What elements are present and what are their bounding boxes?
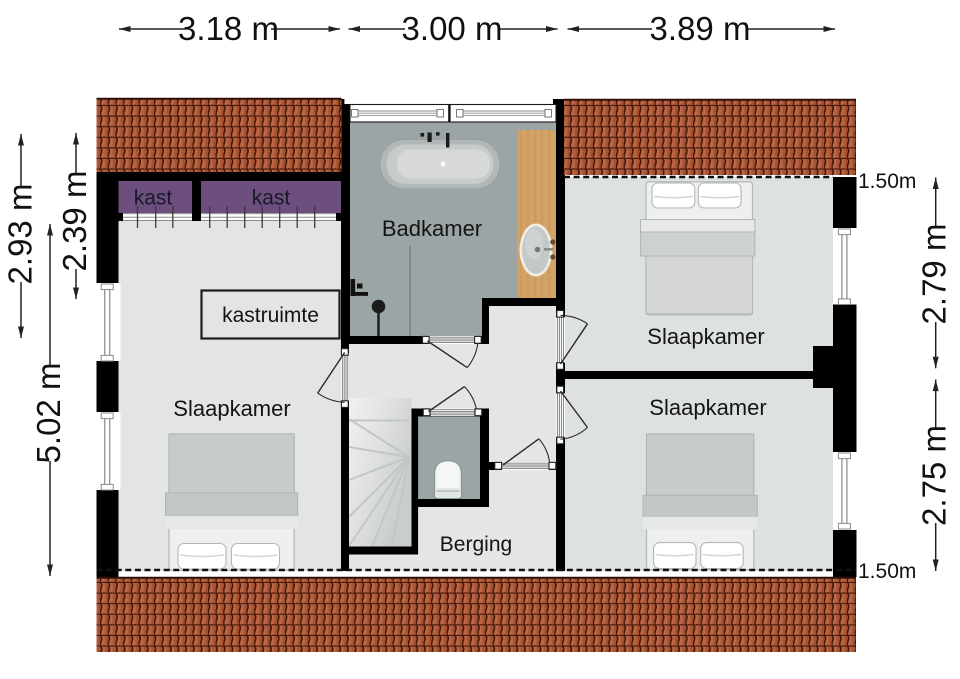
svg-text:1.50m: 1.50m: [858, 560, 916, 583]
svg-text:kastruimte: kastruimte: [222, 304, 319, 327]
svg-text:1.50m: 1.50m: [858, 170, 916, 193]
svg-text:3.00 m: 3.00 m: [402, 10, 503, 47]
svg-text:3.89 m: 3.89 m: [650, 10, 751, 47]
svg-text:2.93 m: 2.93 m: [2, 184, 39, 285]
svg-text:Berging: Berging: [440, 533, 512, 556]
svg-text:5.02 m: 5.02 m: [30, 363, 67, 464]
svg-text:2.39 m: 2.39 m: [56, 171, 93, 272]
svg-text:Slaapkamer: Slaapkamer: [647, 324, 764, 349]
svg-text:2.75 m: 2.75 m: [916, 425, 953, 526]
svg-text:Slaapkamer: Slaapkamer: [649, 395, 766, 420]
svg-text:Slaapkamer: Slaapkamer: [173, 396, 290, 421]
svg-text:Badkamer: Badkamer: [382, 216, 482, 241]
svg-text:kast: kast: [134, 187, 173, 210]
svg-text:3.18 m: 3.18 m: [178, 10, 279, 47]
svg-text:2.79 m: 2.79 m: [916, 224, 953, 325]
svg-text:kast: kast: [252, 187, 291, 210]
